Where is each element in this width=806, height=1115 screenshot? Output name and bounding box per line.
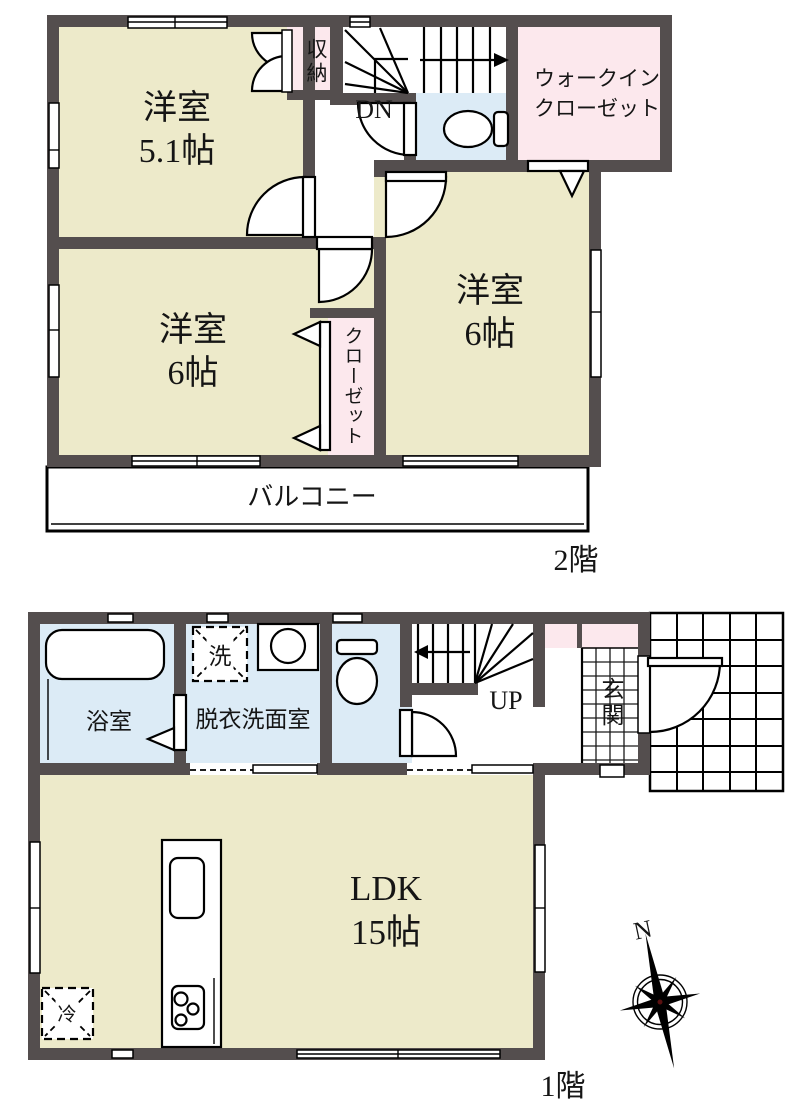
room-name: 洋室 xyxy=(139,88,216,131)
closet-label: クローゼット xyxy=(339,326,366,446)
entry-closet-a xyxy=(545,624,578,648)
entrance-label: 玄関 xyxy=(593,677,627,729)
ldk-label: LDK 15帖 xyxy=(350,867,422,955)
entry-closet-b xyxy=(582,624,638,648)
room-size: 6帖 xyxy=(456,314,524,357)
room-6-left-label: 洋室 6帖 xyxy=(159,310,227,396)
second-floor-name: 2階 xyxy=(554,535,599,579)
sliding-door-hall xyxy=(407,763,533,775)
sink-icon xyxy=(258,624,318,670)
washer-label: 洗 xyxy=(207,637,234,671)
room-name: 洋室 xyxy=(456,271,524,314)
stairs-2f xyxy=(345,27,509,93)
room-5-1-label: 洋室 5.1帖 xyxy=(139,88,216,174)
entrance-step xyxy=(600,765,624,777)
sliding-door-washroom xyxy=(190,763,317,775)
storage-label: 収納 xyxy=(301,38,331,86)
fridge-label: 冷 xyxy=(55,1000,78,1027)
compass-icon xyxy=(604,925,716,1078)
balcony-label: バルコニー xyxy=(247,477,376,514)
wic-label: ウォークイン クローゼット xyxy=(534,64,660,125)
first-floor-plan xyxy=(28,612,783,1077)
bath-label: 浴室 xyxy=(86,702,132,736)
stairs-up-label: UP xyxy=(489,686,522,716)
wic-line1: ウォークイン xyxy=(534,64,660,94)
washroom-label: 脱衣洗面室 xyxy=(196,700,311,734)
wic-line2: クローゼット xyxy=(534,94,660,124)
ldk-floor xyxy=(40,763,533,1048)
room-6-right-label: 洋室 6帖 xyxy=(456,271,524,357)
room-size: 6帖 xyxy=(159,353,227,396)
kitchen-counter xyxy=(162,840,221,1047)
toilet-icon-1f xyxy=(337,640,377,704)
stairs-1f xyxy=(414,624,533,683)
door-hall-1f xyxy=(400,710,456,756)
room-size: 15帖 xyxy=(350,911,422,955)
floor-plan: 洋室 5.1帖 洋室 6帖 洋室 6帖 収納 DN ウォークイン クローゼット … xyxy=(0,0,806,1115)
room-size: 5.1帖 xyxy=(139,131,216,174)
room-name: 洋室 xyxy=(159,310,227,353)
stairs-up-arrow xyxy=(414,645,470,659)
stairs-dn-label: DN xyxy=(355,95,393,125)
toilet-icon-2f xyxy=(444,111,508,147)
room-name: LDK xyxy=(350,867,422,911)
stairs-down-arrow xyxy=(420,53,509,67)
first-floor-name: 1階 xyxy=(541,1061,586,1105)
